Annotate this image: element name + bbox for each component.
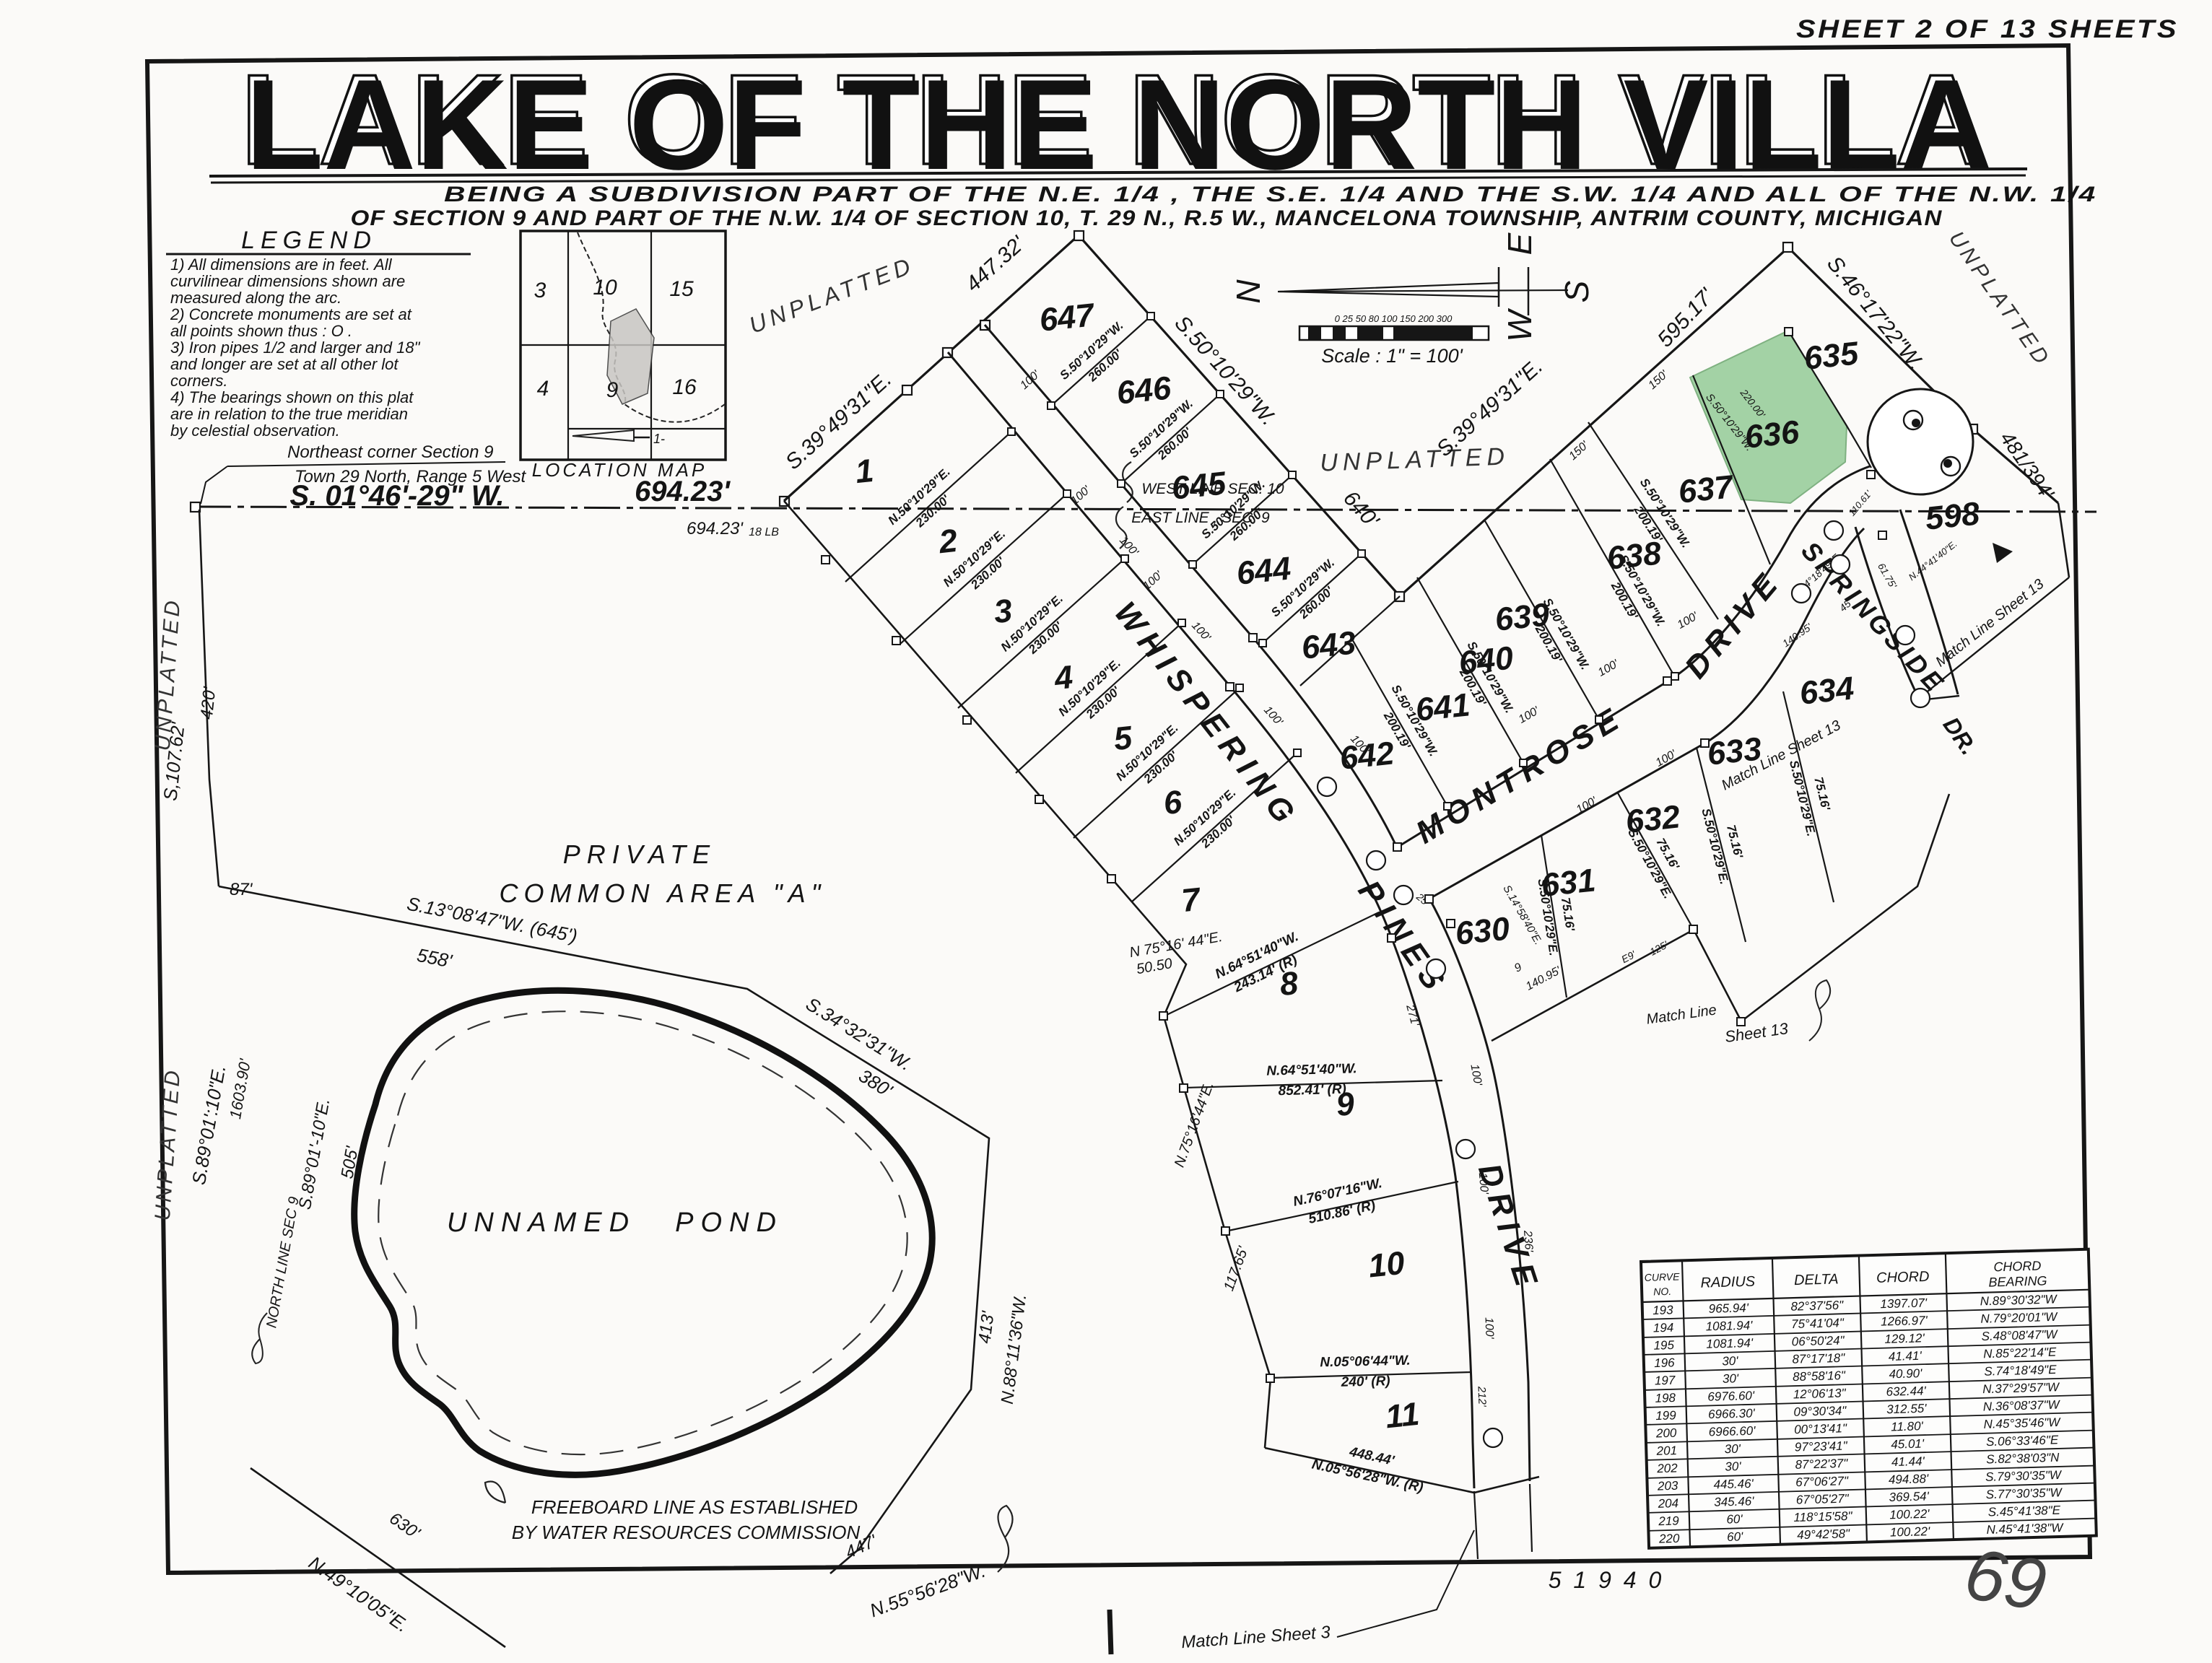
svg-text:87°22'37": 87°22'37" [1795, 1457, 1848, 1472]
svg-text:S.82°38'03"N: S.82°38'03"N [1986, 1451, 2060, 1467]
svg-text:100': 100' [1476, 1172, 1491, 1195]
svg-text:3) Iron pipes 1/2 and larger: 3) Iron pipes 1/2 and larger and 18" [170, 339, 421, 357]
svg-text:00°13'41": 00°13'41" [1794, 1421, 1847, 1436]
svg-text:312.55': 312.55' [1886, 1402, 1928, 1417]
svg-text:N.45°41'38"W: N.45°41'38"W [1986, 1521, 2064, 1537]
svg-text:06°50'24": 06°50'24" [1792, 1333, 1845, 1348]
svg-text:N.36°08'37"W: N.36°08'37"W [1983, 1398, 2061, 1414]
svg-text:10: 10 [1367, 1244, 1406, 1285]
svg-text:60': 60' [1727, 1529, 1743, 1544]
svg-text:S.79°30'35"W: S.79°30'35"W [1985, 1468, 2063, 1484]
svg-text:100': 100' [1482, 1317, 1495, 1340]
svg-text:9: 9 [606, 378, 619, 402]
svg-text:6966.30': 6966.30' [1708, 1406, 1756, 1421]
svg-text:measured along the arc.: measured along the arc. [170, 289, 341, 307]
svg-text:196: 196 [1654, 1356, 1675, 1370]
svg-text:S: S [1558, 280, 1595, 302]
svg-text:195: 195 [1653, 1338, 1674, 1353]
svg-text:4: 4 [537, 377, 549, 401]
svg-text:all points shown thus : O .: all points shown thus : O . [170, 322, 352, 340]
svg-text:644: 644 [1235, 549, 1292, 592]
svg-text:82°37'56": 82°37'56" [1790, 1298, 1844, 1314]
svg-text:45.01': 45.01' [1891, 1437, 1925, 1452]
svg-text:3: 3 [534, 279, 547, 302]
svg-text:1: 1 [853, 452, 875, 490]
svg-text:129.12': 129.12' [1884, 1331, 1925, 1346]
svg-text:642: 642 [1338, 734, 1395, 777]
svg-text:87°17'18": 87°17'18" [1792, 1351, 1845, 1366]
svg-text:CHORD: CHORD [1993, 1259, 2042, 1275]
svg-text:CHORD: CHORD [1876, 1269, 1930, 1286]
svg-text:18 LB: 18 LB [749, 526, 779, 538]
svg-text:BY WATER RESOURCES COMMISSIO: BY WATER RESOURCES COMMISSION [512, 1522, 861, 1543]
svg-text:OF SECTION 9 AND PART OF THE N: OF SECTION 9 AND PART OF THE N.W. 1/4 OF… [351, 206, 1943, 230]
svg-text:09°30'34": 09°30'34" [1793, 1404, 1847, 1419]
svg-text:N.64°51'40"W.: N.64°51'40"W. [1266, 1061, 1357, 1079]
svg-text:1081.94': 1081.94' [1706, 1336, 1754, 1351]
svg-text:CURVE: CURVE [1645, 1270, 1681, 1283]
svg-text:30': 30' [1725, 1459, 1741, 1474]
svg-text:2: 2 [936, 522, 959, 560]
svg-text:1) All dimensions are in feet.: 1) All dimensions are in feet. All [170, 256, 393, 274]
svg-text:69: 69 [1959, 1533, 2052, 1627]
svg-text:15: 15 [669, 277, 694, 301]
svg-text:199: 199 [1655, 1408, 1676, 1423]
svg-text:N.37°29'57"W: N.37°29'57"W [1982, 1380, 2060, 1396]
svg-text:and longer are set at all othe: and longer are set at all other lot [170, 355, 399, 373]
svg-text:N.79°20'01"W: N.79°20'01"W [1980, 1310, 2058, 1326]
svg-text:RADIUS: RADIUS [1700, 1274, 1756, 1291]
svg-text:345.46': 345.46' [1714, 1494, 1755, 1509]
svg-text:6966.60': 6966.60' [1709, 1424, 1756, 1439]
svg-text:637: 637 [1676, 468, 1736, 510]
svg-text:100.22': 100.22' [1890, 1524, 1931, 1540]
svg-text:curvilinear dimensions shown a: curvilinear dimensions shown are [170, 272, 405, 290]
svg-text:193: 193 [1653, 1303, 1673, 1317]
svg-text:420': 420' [197, 685, 220, 720]
svg-text:N.05°06'44"W.: N.05°06'44"W. [1320, 1353, 1411, 1371]
svg-text:203: 203 [1657, 1479, 1678, 1493]
svg-text:200: 200 [1655, 1426, 1677, 1441]
svg-text:0 25 50 80 100 150 20: 0 25 50 80 100 150 200 300 [1335, 313, 1453, 324]
svg-text:N.89°30'32"W: N.89°30'32"W [1980, 1292, 2058, 1308]
svg-text:SHEET 2 OF 13 SHEETS: SHEET 2 OF 13 SHEETS [1796, 15, 2179, 43]
svg-text:636: 636 [1743, 413, 1801, 455]
svg-text:647: 647 [1037, 296, 1097, 339]
svg-text:1-: 1- [653, 432, 665, 446]
svg-text:12°06'13": 12°06'13" [1793, 1386, 1847, 1401]
svg-text:11: 11 [1383, 1395, 1421, 1436]
svg-text:219: 219 [1658, 1514, 1679, 1528]
svg-text:LEGEND: LEGEND [241, 227, 377, 254]
svg-text:11.80': 11.80' [1891, 1419, 1924, 1433]
svg-text:by celestial observation.: by celestial observation. [170, 422, 340, 440]
svg-text:BEING A SUBDIVISION PART OF TH: BEING A SUBDIVISION PART OF THE N.E. 1/4… [444, 183, 2097, 206]
svg-text:corners.: corners. [170, 372, 227, 390]
svg-text:DELTA: DELTA [1794, 1271, 1839, 1288]
svg-text:445.46': 445.46' [1713, 1477, 1754, 1492]
svg-text:204: 204 [1657, 1496, 1678, 1511]
svg-text:16: 16 [672, 375, 697, 399]
svg-text:BEARING: BEARING [1988, 1273, 2047, 1289]
svg-text:49°42'58": 49°42'58" [1797, 1527, 1850, 1542]
svg-text:1081.94': 1081.94' [1705, 1319, 1753, 1334]
svg-text:6976.60': 6976.60' [1707, 1389, 1755, 1404]
svg-text:E: E [1501, 232, 1538, 255]
svg-text:PRIVATE: PRIVATE [563, 839, 716, 869]
svg-text:41.41': 41.41' [1889, 1349, 1923, 1363]
svg-text:67°06'27": 67°06'27" [1795, 1474, 1849, 1489]
svg-text:198: 198 [1655, 1391, 1676, 1405]
svg-text:194: 194 [1653, 1321, 1674, 1335]
svg-text:646: 646 [1115, 369, 1173, 411]
svg-text:NO.: NO. [1653, 1286, 1671, 1298]
svg-text:88°58'16": 88°58'16" [1793, 1369, 1846, 1384]
svg-text:S.48°08'47"W: S.48°08'47"W [1981, 1327, 2058, 1343]
svg-text:Scale : 1" = 100': Scale : 1" = 100' [1321, 345, 1463, 367]
svg-text:5 1 9 4 0: 5 1 9 4 0 [1549, 1567, 1665, 1593]
svg-text:413': 413' [975, 1309, 998, 1345]
svg-text:S.74°18'49"E: S.74°18'49"E [1984, 1363, 2057, 1379]
svg-text:30': 30' [1722, 1354, 1738, 1369]
svg-text:197: 197 [1655, 1374, 1676, 1388]
svg-text:598: 598 [1923, 494, 1981, 537]
svg-text:S.45°41'38"E: S.45°41'38"E [1988, 1503, 2061, 1519]
svg-text:60': 60' [1726, 1512, 1743, 1527]
svg-text:1266.97': 1266.97' [1881, 1314, 1928, 1329]
svg-text:694.23': 694.23' [687, 519, 744, 538]
svg-text:494.88': 494.88' [1889, 1472, 1930, 1487]
svg-text:2) Concrete monuments are set: 2) Concrete monuments are set at [170, 305, 412, 323]
svg-text:LOCATION MAP: LOCATION MAP [532, 459, 707, 481]
svg-text:N.45°35'46"W: N.45°35'46"W [1983, 1415, 2061, 1431]
svg-text:100.22': 100.22' [1889, 1507, 1930, 1522]
svg-text:634: 634 [1798, 669, 1855, 712]
svg-text:202: 202 [1656, 1461, 1678, 1475]
svg-text:POND: POND [675, 1208, 783, 1238]
svg-text:201: 201 [1655, 1444, 1677, 1458]
svg-text:41.44': 41.44' [1891, 1454, 1925, 1469]
svg-text:3: 3 [992, 592, 1014, 630]
svg-text:1397.07': 1397.07' [1880, 1296, 1928, 1311]
svg-text:N.85°22'14"E: N.85°22'14"E [1983, 1345, 2057, 1361]
svg-text:632.44': 632.44' [1886, 1384, 1927, 1399]
svg-text:67°05'27": 67°05'27" [1796, 1492, 1850, 1507]
svg-text:Northeast corner Section 9: Northeast corner Section 9 [287, 442, 493, 462]
svg-text:630: 630 [1453, 909, 1511, 952]
svg-text:236': 236' [1521, 1229, 1535, 1253]
svg-text:4) The bearings shown on this: 4) The bearings shown on this plat [170, 388, 414, 406]
svg-text:UNNAMED: UNNAMED [447, 1208, 636, 1238]
svg-text:97°23'41": 97°23'41" [1795, 1439, 1848, 1454]
svg-text:220: 220 [1658, 1532, 1680, 1546]
svg-text:75°41'04": 75°41'04" [1791, 1316, 1845, 1331]
svg-text:852.41' (R): 852.41' (R) [1278, 1082, 1346, 1099]
svg-text:FREEBOARD LINE AS ESTABLISHE: FREEBOARD LINE AS ESTABLISHED [531, 1496, 858, 1518]
svg-text:240' (R): 240' (R) [1341, 1374, 1390, 1390]
svg-text:643: 643 [1299, 624, 1357, 666]
svg-text:40.90': 40.90' [1889, 1366, 1923, 1381]
svg-text:S.06°33'46"E: S.06°33'46"E [1986, 1433, 2059, 1449]
svg-text:are in relation to the true me: are in relation to the true meridian [170, 405, 408, 423]
svg-text:S.77°30'35"W: S.77°30'35"W [1985, 1485, 2063, 1501]
svg-text:COMMON AREA "A": COMMON AREA "A" [500, 878, 827, 908]
svg-text:30': 30' [1724, 1442, 1741, 1457]
svg-text:30': 30' [1723, 1371, 1739, 1386]
svg-text:635: 635 [1802, 334, 1860, 377]
svg-text:645: 645 [1170, 464, 1228, 507]
svg-text:633: 633 [1705, 730, 1763, 772]
svg-text:212': 212' [1475, 1386, 1488, 1408]
svg-text:118°15'58": 118°15'58" [1793, 1509, 1852, 1524]
svg-text:4: 4 [1052, 658, 1074, 697]
svg-text:W: W [1501, 307, 1538, 342]
svg-text:10: 10 [593, 276, 617, 300]
svg-text:369.54': 369.54' [1889, 1489, 1930, 1504]
svg-text:965.94': 965.94' [1708, 1301, 1749, 1316]
svg-text:N: N [1229, 279, 1267, 304]
